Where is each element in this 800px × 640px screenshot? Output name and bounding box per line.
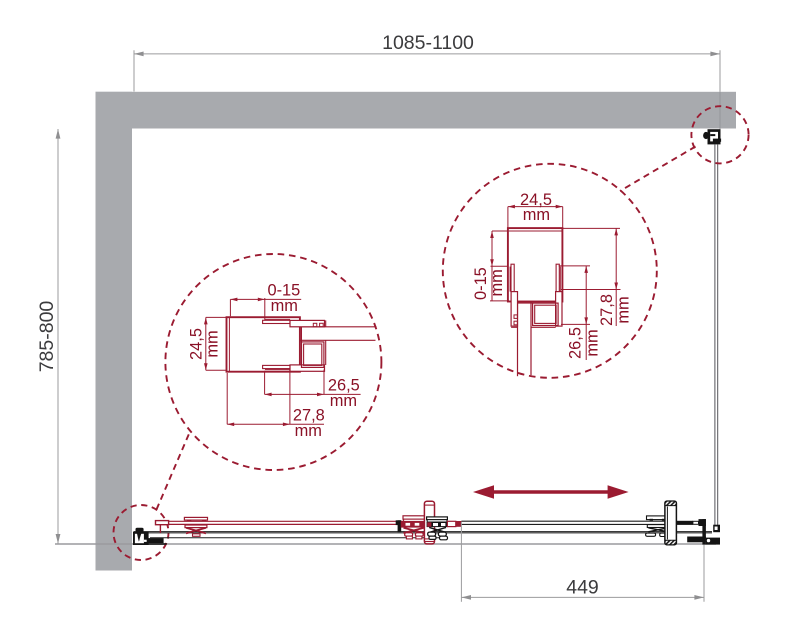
svg-text:26,5: 26,5 — [567, 327, 585, 359]
svg-text:1085-1100: 1085-1100 — [382, 32, 474, 54]
svg-text:mm: mm — [330, 392, 357, 410]
svg-text:mm: mm — [295, 422, 322, 440]
svg-text:mm: mm — [271, 297, 298, 315]
svg-text:mm: mm — [204, 330, 222, 357]
svg-text:mm: mm — [523, 206, 550, 224]
svg-text:449: 449 — [566, 576, 599, 598]
svg-text:mm: mm — [488, 269, 506, 296]
svg-text:mm: mm — [583, 329, 601, 356]
svg-text:mm: mm — [614, 296, 632, 323]
svg-text:785-800: 785-800 — [36, 301, 58, 373]
